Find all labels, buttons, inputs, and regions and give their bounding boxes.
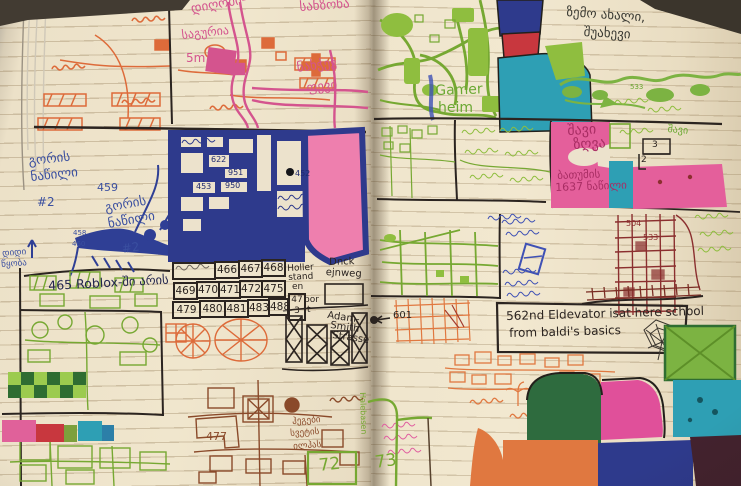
right-page [371,0,741,486]
notebook-photo: დიღომი- საგურია 5m სანზონა ნახჭევ ფევი გ… [0,0,741,486]
left-page [0,0,371,486]
notebook-spine [354,0,390,486]
